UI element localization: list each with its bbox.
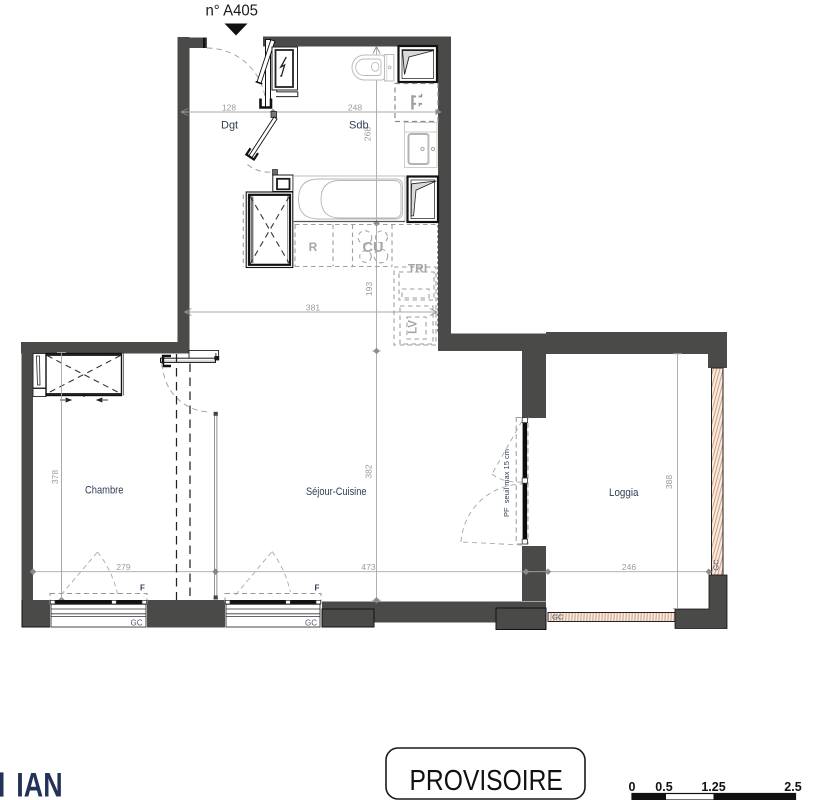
svg-text:CU: CU [363,240,384,256]
svg-text:TRI: TRI [408,262,427,276]
svg-text:279: 279 [116,562,130,572]
svg-text:1.25: 1.25 [701,780,725,794]
svg-text:382: 382 [364,464,374,478]
svg-text:378: 378 [50,470,60,484]
svg-text:128: 128 [222,103,236,113]
svg-text:PF seuil max 15 cm: PF seuil max 15 cm [502,449,511,517]
svg-text:381: 381 [306,303,320,313]
svg-text:Sdb: Sdb [349,120,369,132]
svg-text:GC: GC [131,619,143,628]
svg-text:2.5: 2.5 [784,780,801,794]
svg-text:R: R [309,240,318,254]
svg-text:388: 388 [664,475,674,489]
svg-text:Chambre: Chambre [85,485,124,497]
svg-text:246: 246 [622,562,636,572]
svg-text:LV: LV [408,320,420,334]
svg-text:0.5: 0.5 [655,780,672,794]
svg-text:Loggia: Loggia [609,487,639,499]
svg-text:n° A405: n° A405 [206,2,259,19]
svg-text:Séjour-Cuisine: Séjour-Cuisine [306,486,367,498]
svg-text:473: 473 [361,562,375,572]
svg-text:0: 0 [629,780,636,794]
svg-text:PROVISOIRE: PROVISOIRE [410,764,563,796]
svg-text:GC: GC [712,559,721,571]
svg-text:GC: GC [552,612,564,621]
svg-text:F: F [315,584,320,593]
svg-text:248: 248 [348,103,362,113]
svg-text:F: F [140,584,145,593]
svg-text:IAN: IAN [16,765,62,800]
svg-text:GC: GC [305,619,317,628]
svg-text:Dgt: Dgt [221,120,238,132]
svg-text:193: 193 [364,282,374,296]
